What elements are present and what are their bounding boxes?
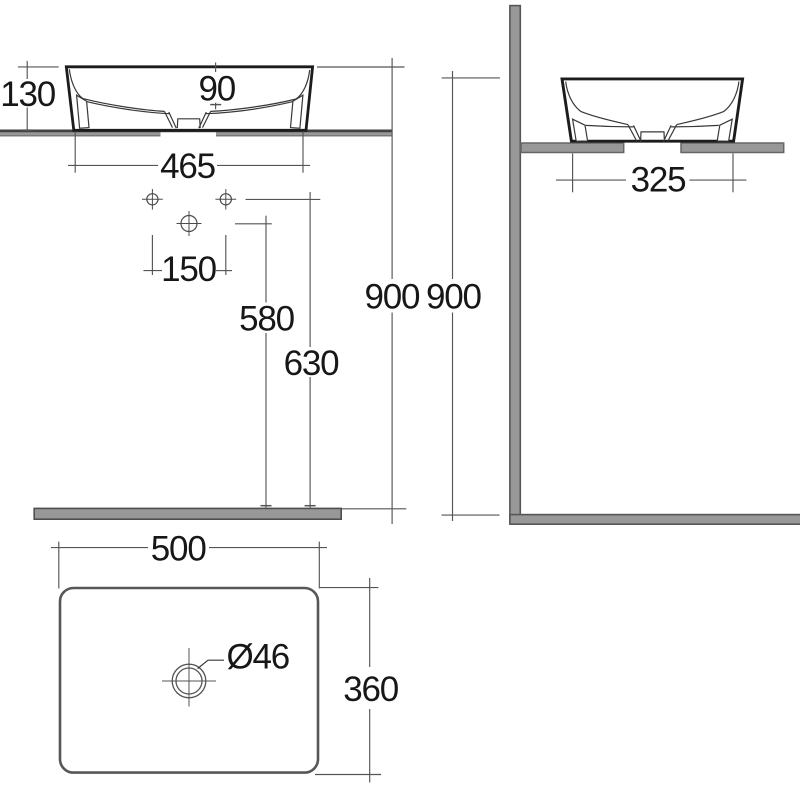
svg-text:360: 360 [343, 670, 399, 709]
svg-text:900: 900 [426, 277, 482, 316]
svg-text:90: 90 [199, 69, 236, 108]
svg-text:150: 150 [161, 250, 217, 289]
svg-text:900: 900 [365, 277, 421, 316]
svg-text:500: 500 [151, 530, 207, 569]
svg-text:325: 325 [631, 161, 686, 200]
svg-text:130: 130 [0, 75, 56, 114]
svg-text:580: 580 [239, 299, 295, 338]
svg-text:630: 630 [284, 344, 340, 383]
svg-text:Ø46: Ø46 [227, 638, 290, 677]
svg-text:465: 465 [160, 147, 215, 186]
